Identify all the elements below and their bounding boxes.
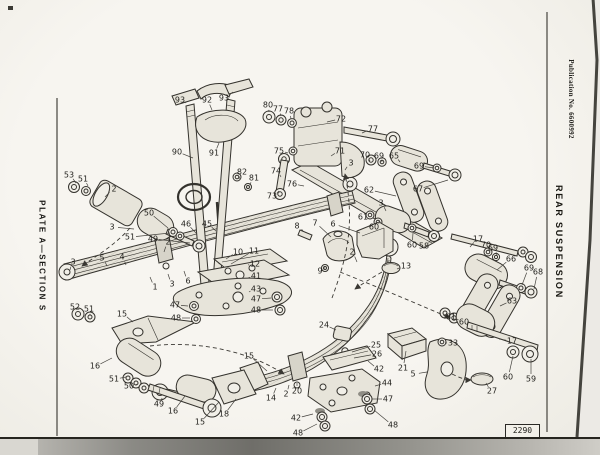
- plate-section-label: PLATE A—SECTION S: [38, 200, 47, 312]
- top-left-bush-assembly: [69, 178, 206, 252]
- front-mount-assembly: [152, 362, 268, 404]
- page-bottom-corner: [0, 439, 38, 455]
- scanned-plate-page: 5351250351493542136464593929390918281807…: [0, 0, 600, 455]
- rear-shackle-assembly: [425, 234, 538, 399]
- page-title: REAR SUSPENSION: [554, 185, 564, 299]
- page-bottom-edge: [0, 437, 600, 455]
- lower-plate-group: [308, 328, 426, 431]
- figure-number-box: 2290: [505, 424, 540, 438]
- publication-number-label: Publication No. 6600992: [567, 59, 575, 138]
- exploded-front-mount: [72, 308, 221, 417]
- centre-plates: [173, 249, 291, 324]
- diagram-sketch: [0, 0, 600, 455]
